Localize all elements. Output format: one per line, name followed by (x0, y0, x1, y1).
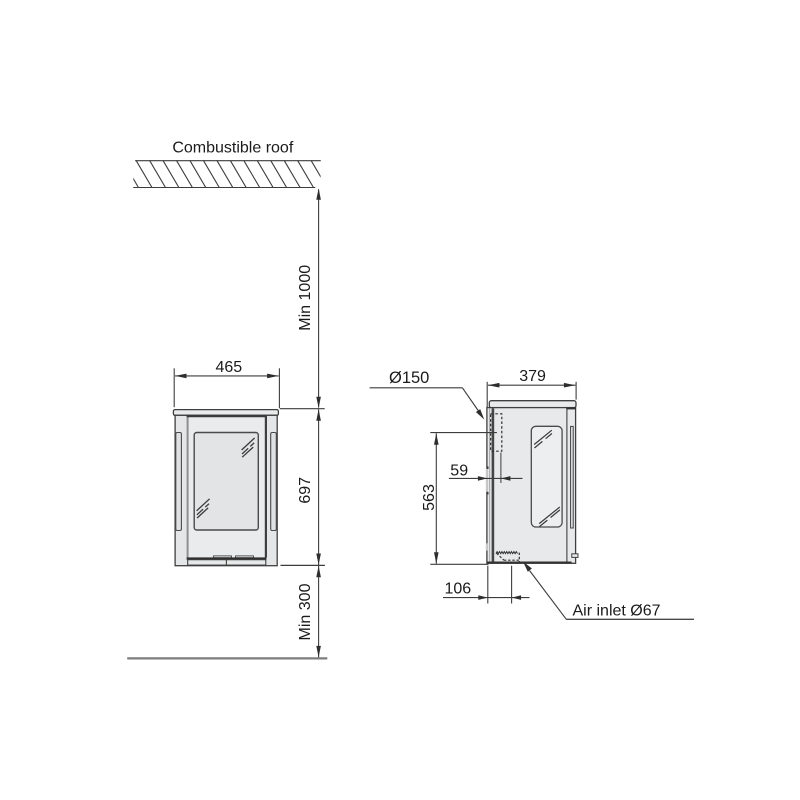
svg-text:Combustible roof: Combustible roof (172, 140, 294, 157)
svg-text:697: 697 (297, 477, 314, 504)
svg-text:59: 59 (450, 462, 468, 479)
svg-text:379: 379 (519, 368, 546, 385)
svg-text:Ø150: Ø150 (389, 369, 429, 387)
svg-text:Air inlet Ø67: Air inlet Ø67 (573, 603, 661, 620)
svg-text:106: 106 (444, 581, 471, 598)
svg-text:563: 563 (421, 484, 438, 511)
svg-text:465: 465 (215, 359, 242, 376)
svg-text:Min 300: Min 300 (297, 583, 314, 640)
svg-text:Min 1000: Min 1000 (297, 265, 314, 331)
